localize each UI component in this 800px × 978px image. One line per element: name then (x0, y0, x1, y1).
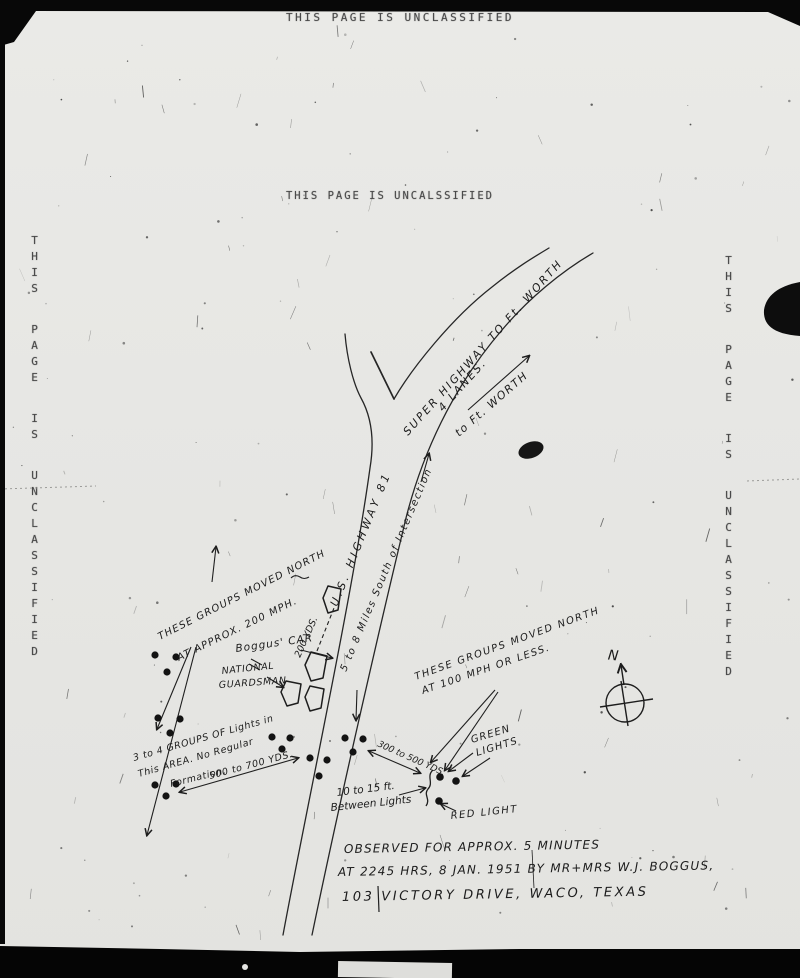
top-black-bar (0, 0, 800, 46)
median-stroke (371, 352, 394, 399)
brace-squiggle (426, 770, 433, 806)
bottom-white-tab (338, 961, 452, 978)
bottom-white-dot (242, 964, 248, 970)
light-dot (154, 714, 161, 721)
red-light-dot (435, 797, 443, 805)
green-light-dot (452, 777, 460, 785)
car-shape (305, 686, 324, 711)
highway-81-right-line (312, 253, 593, 935)
left-up-arrow (212, 547, 216, 582)
light-dot (341, 734, 348, 741)
light-dot (359, 735, 366, 742)
label-guardsman: GUARDSMAN (218, 675, 287, 691)
light-dot (315, 772, 322, 779)
light-dot (306, 754, 313, 761)
light-dot (349, 748, 356, 755)
yds-200-dashed-line (317, 608, 334, 651)
light-dot (162, 792, 169, 799)
label-national: NATIONAL (221, 661, 275, 677)
light-dot (166, 729, 173, 736)
roads (283, 248, 593, 935)
label-red-light: RED LIGHT (450, 804, 518, 822)
light-dot (163, 668, 170, 675)
light-dot (286, 734, 293, 741)
light-dot (151, 781, 158, 788)
compass-north-label: N (607, 648, 620, 665)
smudge-mark (291, 576, 309, 579)
ink-blob (516, 438, 546, 462)
light-dot (268, 733, 275, 740)
compass-cross-h (600, 699, 653, 707)
green-lights-arrow-2 (463, 758, 490, 776)
green-lights-arrow-1 (449, 753, 473, 771)
right-dotted-line (747, 479, 800, 481)
caption-line-1: OBSERVED FOR APPROX. 5 MINUTES (344, 838, 600, 856)
down-arrow (356, 690, 357, 720)
left-dotted-line (0, 486, 96, 489)
light-dot (323, 756, 330, 763)
label-groups-slow-1: THESE GROUPS MOVED NORTH (413, 605, 601, 682)
scanned-page: THIS PAGE IS UNCLASSIFIED THIS PAGE IS U… (0, 0, 800, 978)
light-dot (176, 715, 183, 722)
light-dot (151, 651, 158, 658)
left-black-strip (0, 0, 5, 944)
compass-rose (600, 665, 653, 726)
caption-line-2: AT 2245 HRS, 8 JAN. 1951 BY MR+MRS W.J. … (337, 858, 715, 879)
caption-line-3: 103 VICTORY DRIVE, WACO, TEXAS (342, 885, 649, 905)
map-drawing: N SUPER HIGHWAY TO Ft. WORTH 4 LANES. to… (0, 0, 800, 978)
right-edge-blob (764, 282, 800, 336)
